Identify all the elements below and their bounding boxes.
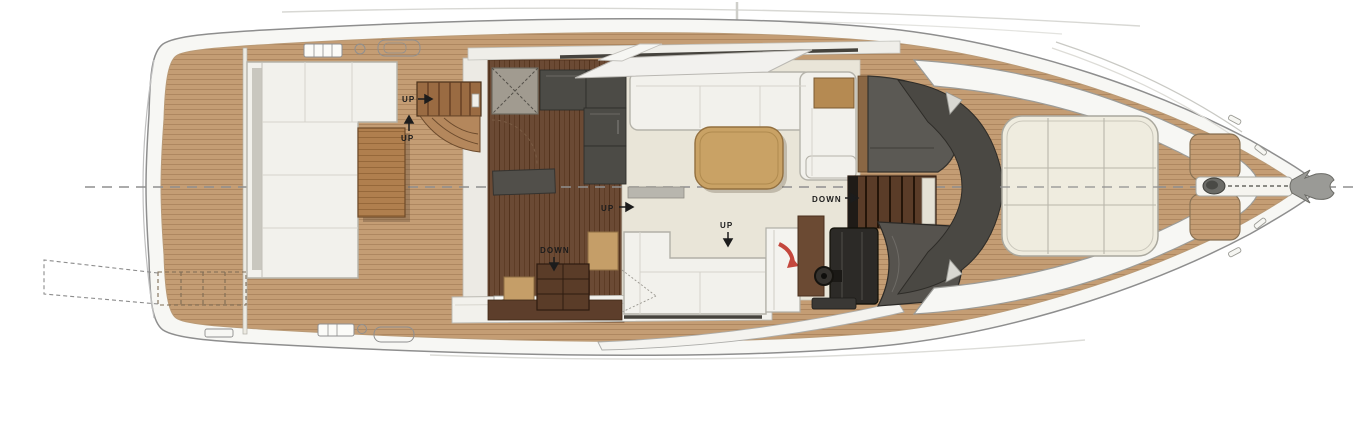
passerelle-dashed-outline	[44, 260, 158, 304]
galley-cabinet	[588, 232, 618, 270]
grill-icon	[318, 324, 354, 336]
galley-island	[493, 169, 556, 195]
helm-seat	[830, 228, 878, 304]
cabin-down-stairs	[848, 176, 936, 228]
foredeck-sunpad	[1000, 116, 1165, 256]
coffee-table	[695, 127, 787, 193]
saloon-step	[628, 187, 684, 198]
deck-plan-canvas: UP UP UP UP DOWN DOWN	[0, 0, 1366, 438]
label-up-swim: UP	[401, 134, 414, 143]
galley-down-stairs	[537, 264, 589, 310]
yacht-floor-plan: UP UP UP UP DOWN DOWN	[0, 0, 1366, 438]
side-door	[766, 228, 800, 312]
label-up-galley: UP	[601, 204, 614, 213]
label-up-flybridge: UP	[402, 95, 415, 104]
sofa-corner-table	[814, 78, 854, 108]
label-down-galley: DOWN	[540, 246, 570, 255]
label-down-cabins: DOWN	[812, 195, 842, 204]
label-up-cockpit: UP	[720, 221, 733, 230]
